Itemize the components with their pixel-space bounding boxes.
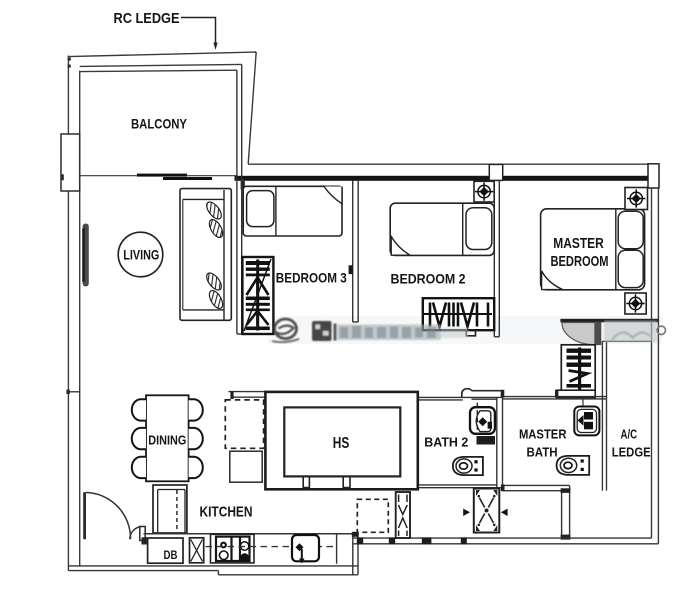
svg-text:LIVING: LIVING: [123, 247, 159, 263]
svg-text:BATH: BATH: [527, 444, 558, 459]
svg-text:A/C: A/C: [621, 427, 638, 442]
svg-text:BALCONY: BALCONY: [131, 116, 188, 132]
svg-text:DINING: DINING: [148, 432, 186, 447]
svg-text:HS: HS: [333, 435, 350, 452]
svg-text:BEDROOM 2: BEDROOM 2: [391, 271, 466, 286]
svg-text:RC LEDGE: RC LEDGE: [114, 10, 180, 27]
svg-text:BATH 2: BATH 2: [424, 434, 468, 449]
svg-text:BEDROOM: BEDROOM: [551, 253, 609, 270]
svg-text:DB: DB: [164, 548, 178, 562]
svg-text:MASTER: MASTER: [553, 235, 604, 252]
svg-text:LEDGE: LEDGE: [612, 444, 651, 459]
svg-text:MASTER: MASTER: [519, 427, 567, 442]
svg-text:KITCHEN: KITCHEN: [200, 504, 253, 521]
svg-text:BEDROOM 3: BEDROOM 3: [276, 271, 347, 286]
